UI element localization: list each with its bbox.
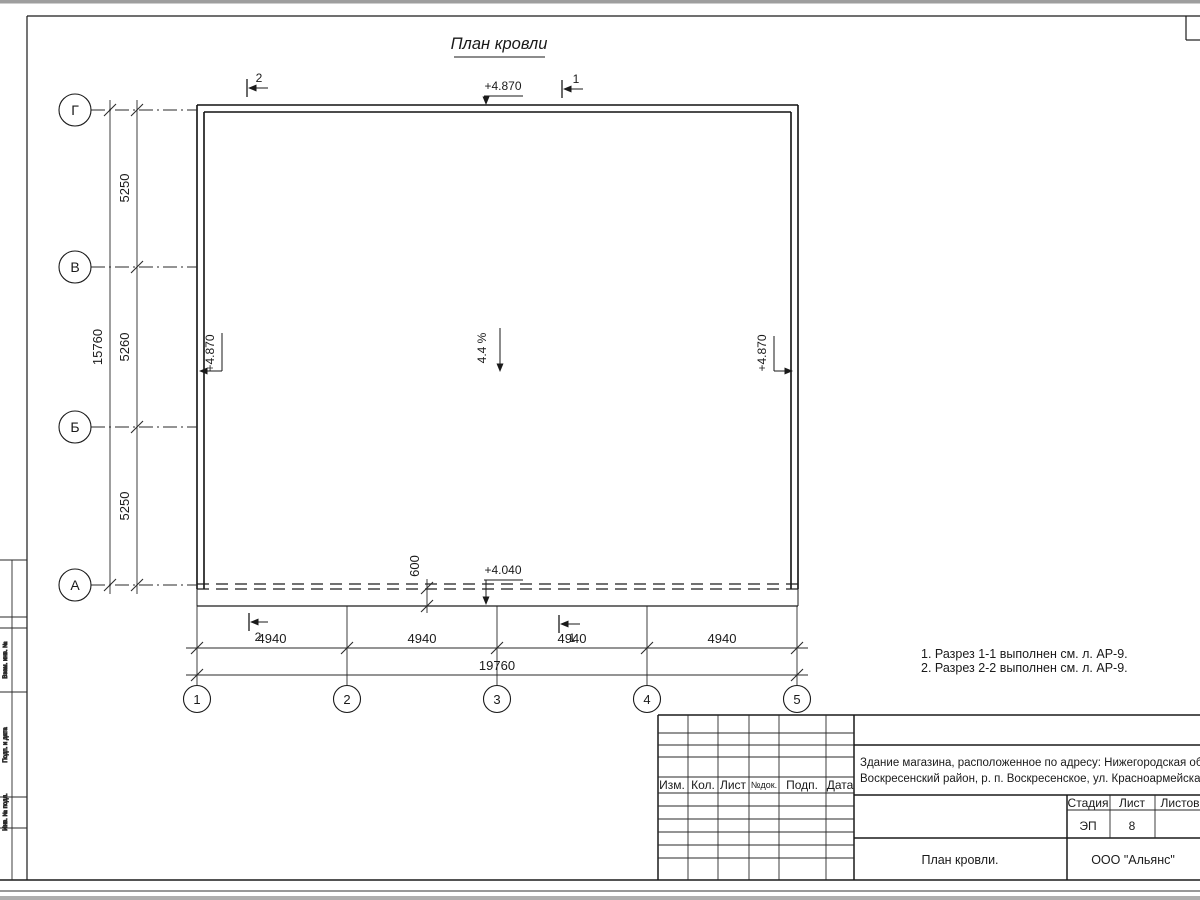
titleblock-col-header: №док. <box>751 780 777 790</box>
elevation-value: +4.040 <box>484 563 521 577</box>
arrow-left-icon <box>248 85 257 92</box>
section-label: 2 <box>255 630 262 644</box>
axis-label: 4 <box>643 692 650 707</box>
eave-offset-dimension <box>421 579 433 613</box>
hidden-wall-dashed-line <box>197 584 798 589</box>
dim-bottom-segment: 4940 <box>708 631 737 646</box>
titleblock-col-header: Изм. <box>659 778 685 792</box>
title-block: Изм. Кол. Лист №док. Подп. Дата Здание м… <box>658 715 1200 880</box>
dim-bottom-total: 19760 <box>479 658 515 673</box>
arrow-left-icon <box>560 621 569 628</box>
stage-header: Стадия <box>1068 796 1109 810</box>
titleblock-col-header: Лист <box>720 778 747 792</box>
note-line: 2. Разрез 2-2 выполнен см. л. АР-9. <box>921 661 1128 675</box>
roof-outline <box>197 105 798 589</box>
axis-label: В <box>70 259 79 275</box>
window-top-edge <box>0 0 1200 4</box>
elevation-value: +4.870 <box>755 334 769 371</box>
side-stamp-label: Взам. инв. № <box>2 641 9 678</box>
section-mark-1-top: 1 <box>562 72 583 98</box>
titleblock-col-header: Кол. <box>691 778 715 792</box>
sheet-number: 8 <box>1129 819 1136 833</box>
elevation-mark-top: +4.870 <box>483 79 524 105</box>
section-mark-2-top: 2 <box>247 71 268 97</box>
dim-bottom-segment: 4940 <box>408 631 437 646</box>
section-label: 1 <box>573 72 580 86</box>
project-description-line: Здание магазина, расположенное по адресу… <box>860 757 1200 769</box>
titleblock-col-header: Дата <box>827 778 854 792</box>
axis-label: Г <box>71 102 79 118</box>
section-label: 2 <box>256 71 263 85</box>
side-stamp-label: Подп. и дата <box>3 727 9 763</box>
axis-label: А <box>70 577 80 593</box>
dim-eave-offset: 600 <box>407 555 422 577</box>
sheets-header: Листов <box>1161 796 1200 810</box>
titleblock-col-header: Подп. <box>786 778 818 792</box>
arrow-down-icon <box>483 597 490 606</box>
elevation-mark-right: +4.870 <box>755 334 793 374</box>
elevation-value: +4.870 <box>484 79 521 93</box>
section-label: 1 <box>569 631 576 645</box>
dim-left-segment: 5250 <box>117 492 132 521</box>
slope-value: 4.4 % <box>475 332 489 363</box>
note-line: 1. Разрез 1-1 выполнен см. л. АР-9. <box>921 647 1128 661</box>
elevation-value: +4.870 <box>203 334 217 371</box>
dim-left-segment: 5250 <box>117 174 132 203</box>
sheet-header: Лист <box>1119 796 1146 810</box>
elevation-mark-left: +4.870 <box>199 333 222 375</box>
window-bottom-edge <box>0 896 1200 900</box>
drawing-name: План кровли. <box>921 853 998 867</box>
axis-bubbles-left <box>59 94 91 601</box>
drawing-title: План кровли <box>451 35 548 53</box>
slope-mark: 4.4 % <box>475 328 504 372</box>
dim-bottom-segment: 4940 <box>258 631 287 646</box>
side-stamp: Взам. инв. № Подп. и дата Инв. № подл. <box>0 560 27 880</box>
axis-label: 1 <box>193 692 200 707</box>
drawing-sheet: Взам. инв. № Подп. и дата Инв. № подл. П… <box>0 0 1200 900</box>
dim-left-segment: 5260 <box>117 333 132 362</box>
project-description-line: Воскресенский район, р. п. Воскресенское… <box>860 773 1200 785</box>
stage-value: ЭП <box>1079 819 1096 833</box>
axis-label: Б <box>70 419 79 435</box>
arrow-down-icon <box>497 364 504 373</box>
axis-label: 3 <box>493 692 500 707</box>
company-name: ООО "Альянс" <box>1091 853 1175 867</box>
roof-eave-edge <box>197 589 798 606</box>
notes: 1. Разрез 1-1 выполнен см. л. АР-9. 2. Р… <box>921 647 1128 675</box>
arrow-down-icon <box>483 97 490 106</box>
arrow-left-icon <box>250 619 259 626</box>
side-stamp-label: Инв. № подл. <box>2 793 9 831</box>
arrow-left-icon <box>563 86 572 93</box>
axis-label: 5 <box>793 692 800 707</box>
dim-left-total: 15760 <box>90 329 105 365</box>
axis-label: 2 <box>343 692 350 707</box>
